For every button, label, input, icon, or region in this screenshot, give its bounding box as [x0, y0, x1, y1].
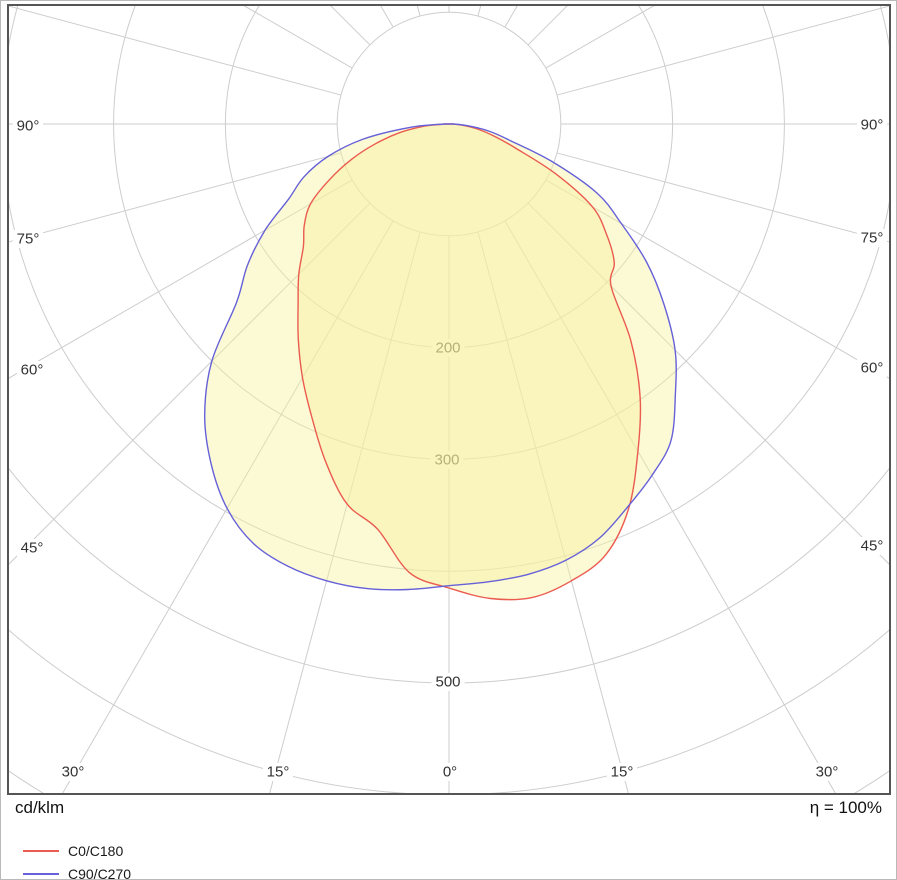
angle-tick-label: 90° — [17, 118, 40, 135]
curve-fill-c90c270 — [205, 124, 677, 590]
grid-ray-195 — [164, 1, 420, 16]
angle-tick-label: 0° — [443, 764, 457, 781]
angle-tick-label: 30° — [816, 764, 839, 781]
grid-ray-255 — [1, 1, 341, 95]
grid-ray-135 — [528, 1, 897, 45]
legend-row: C90/C270 — [23, 862, 131, 880]
grid-ray-225 — [1, 1, 370, 45]
plot-area: 200300500 — [1, 1, 897, 796]
angle-tick-label: 75° — [861, 230, 884, 247]
angle-tick-label: 45° — [861, 538, 884, 555]
grid-ray-165 — [478, 1, 734, 16]
efficiency-label: η = 100% — [810, 798, 882, 818]
angle-tick-label: 90° — [861, 117, 884, 134]
grid-ray-240 — [1, 1, 352, 68]
grid-ray-105 — [557, 1, 897, 95]
angle-tick-label: 75° — [17, 231, 40, 248]
angle-tick-label: 60° — [861, 360, 884, 377]
angle-tick-label: 15° — [267, 764, 290, 781]
legend: C0/C180C90/C270 — [23, 839, 131, 880]
angle-tick-label: 15° — [611, 764, 634, 781]
legend-row: C0/C180 — [23, 839, 131, 862]
radial-tick-label: 500 — [435, 674, 460, 691]
legend-swatch-c90c270 — [23, 873, 59, 875]
legend-swatch-c0c180 — [23, 850, 59, 852]
angle-tick-label: 45° — [21, 540, 44, 557]
legend-label: C90/C270 — [68, 866, 131, 880]
photometric-diagram-page: 20030050090°75°60°45°30°15°0°15°30°45°60… — [0, 0, 897, 880]
unit-label: cd/klm — [15, 798, 64, 818]
angle-tick-label: 60° — [21, 362, 44, 379]
legend-label: C0/C180 — [68, 843, 123, 859]
angle-tick-label: 30° — [62, 764, 85, 781]
polar-photometric-chart: 20030050090°75°60°45°30°15°0°15°30°45°60… — [1, 1, 897, 796]
grid-ray-120 — [546, 1, 897, 68]
